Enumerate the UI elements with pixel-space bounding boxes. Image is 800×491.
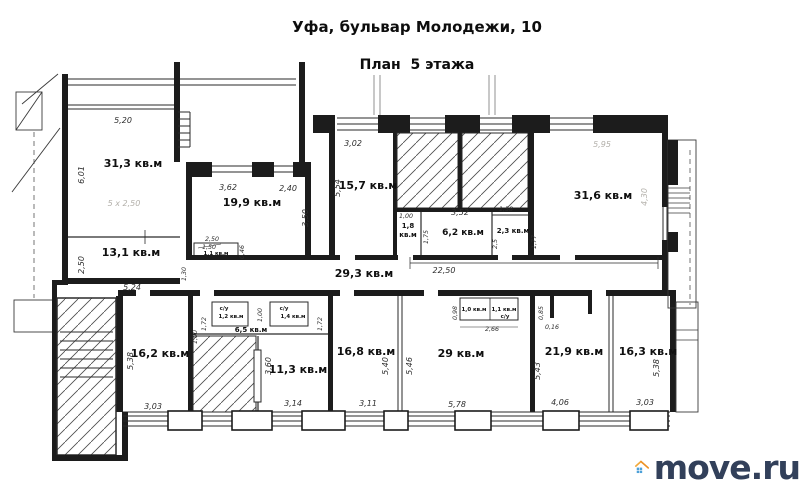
dim-label: 3,02 bbox=[344, 139, 362, 148]
dim-label: 5,54 bbox=[333, 179, 342, 197]
room-label-2-3: 2,3 кв.м bbox=[497, 227, 530, 235]
dim-label: 0,16 bbox=[545, 324, 559, 331]
dim-label: 3,60 bbox=[264, 357, 273, 375]
room-label-6-5: 6,5 кв.м bbox=[235, 326, 268, 334]
dim-label: 0,46 bbox=[239, 245, 246, 259]
dim-label: 3,14 bbox=[284, 399, 302, 408]
dim-label: 5,78 bbox=[448, 400, 466, 409]
room-label-su-2: с/у bbox=[280, 306, 289, 312]
dim-label: 5,20 bbox=[114, 116, 132, 125]
dim-label: 1,72 bbox=[317, 317, 324, 331]
dim-label: 5,43 bbox=[533, 362, 542, 380]
room-label-16-2: 16,2 кв.м bbox=[131, 347, 190, 360]
dim-label: 4,30 bbox=[640, 188, 649, 206]
dim-label: 1,50 bbox=[202, 244, 216, 251]
room-label-21-9: 21,9 кв.м bbox=[545, 345, 604, 358]
dim-label: 1,72 bbox=[201, 317, 208, 331]
room-label-15-7: 15,7 кв.м bbox=[339, 179, 398, 192]
room-label-16-8: 16,8 кв.м bbox=[337, 345, 396, 358]
dim-label: 5,40 bbox=[381, 357, 390, 375]
room-label-6-2: 6,2 кв.м bbox=[442, 228, 484, 238]
dim-label: 5,46 bbox=[405, 357, 414, 375]
house-window-squares bbox=[637, 468, 642, 473]
move-ru-watermark: move.ru bbox=[634, 443, 800, 491]
room-label-19-9: 19,9 кв.м bbox=[223, 196, 282, 209]
floor-plan-drawing: 31,3 кв.м 13,1 кв.м 19,9 кв.м 1,1 кв.м 1… bbox=[0, 0, 800, 491]
stairwell bbox=[52, 280, 128, 461]
room-label-1-8-line2: кв.м bbox=[399, 231, 417, 239]
dim-label: 2,5 bbox=[492, 239, 499, 249]
bottom-window-band bbox=[123, 411, 670, 430]
move-ru-house-icon bbox=[634, 444, 650, 490]
dim-label: 3,11 bbox=[359, 399, 377, 408]
dim-label: 0,98 bbox=[452, 306, 459, 320]
dim-label: 5,95 bbox=[593, 140, 611, 149]
room-label-1-0: 1,0 кв.м bbox=[462, 307, 487, 313]
floor-plan-page: Уфа, бульвар Молодежи, 10 План 5 этажа bbox=[0, 0, 800, 491]
dim-label: 3,03 bbox=[144, 402, 162, 411]
dim-label: 1,75 bbox=[423, 230, 430, 244]
dim-label: 2,50 bbox=[77, 256, 86, 274]
upper-middle-walls bbox=[329, 133, 534, 255]
dim-label: 6,01 bbox=[77, 166, 86, 184]
room-label-16-3: 16,3 кв.м bbox=[619, 345, 678, 358]
room-label-su-1: с/у bbox=[220, 306, 229, 312]
move-ru-logo-text: move.ru bbox=[654, 448, 800, 487]
room-label-13-1: 13,1 кв.м bbox=[102, 246, 161, 259]
room-label-su-1-area: 1,2 кв.м bbox=[219, 314, 244, 320]
dim-label: 5,24 bbox=[123, 283, 141, 292]
dim-label: 2,66 bbox=[485, 326, 499, 333]
dim-label: 1,77 bbox=[531, 235, 538, 249]
room-label-29-3: 29,3 кв.м bbox=[335, 267, 394, 280]
room-label-su-2-area: 1,4 кв.м bbox=[281, 314, 306, 320]
dim-label: 1,00 bbox=[192, 330, 199, 344]
room-label-29: 29 кв.м bbox=[438, 347, 485, 360]
corridor-walls bbox=[118, 255, 676, 296]
dim-label: 3,62 bbox=[219, 183, 237, 192]
room-label-1-1: 1,1 кв.м bbox=[204, 251, 229, 257]
dim-label: 4,06 bbox=[551, 398, 569, 407]
room-label-11-3: 11,3 кв.м bbox=[269, 363, 328, 376]
room-label-31-3: 31,3 кв.м bbox=[104, 157, 163, 170]
dim-label: 5 х 2,50 bbox=[108, 199, 141, 208]
dim-label: 22,50 bbox=[433, 266, 456, 275]
dim-label: 5,38 bbox=[126, 352, 135, 370]
room-label-1-1b: 1,1 кв.м bbox=[492, 307, 517, 313]
dim-label: 1,00 bbox=[257, 308, 264, 322]
room-label-su-3: с/у bbox=[501, 314, 510, 320]
dim-label: 0,85 bbox=[538, 306, 545, 320]
room-label-31-6: 31,6 кв.м bbox=[574, 189, 633, 202]
dim-label: 2,50 bbox=[205, 236, 219, 243]
room-label-1-8-line1: 1,8 bbox=[402, 222, 415, 230]
dim-label: 1,00 bbox=[399, 213, 413, 220]
dim-label: 3,52 bbox=[451, 208, 469, 217]
dim-label: 2,40 bbox=[279, 184, 297, 193]
dim-label: 1,30 bbox=[181, 267, 188, 281]
dim-label: 1,58 bbox=[499, 206, 513, 213]
dim-label: 3,03 bbox=[636, 398, 654, 407]
dim-label: 5,38 bbox=[652, 359, 661, 377]
dim-label: 3,50 bbox=[301, 209, 310, 227]
